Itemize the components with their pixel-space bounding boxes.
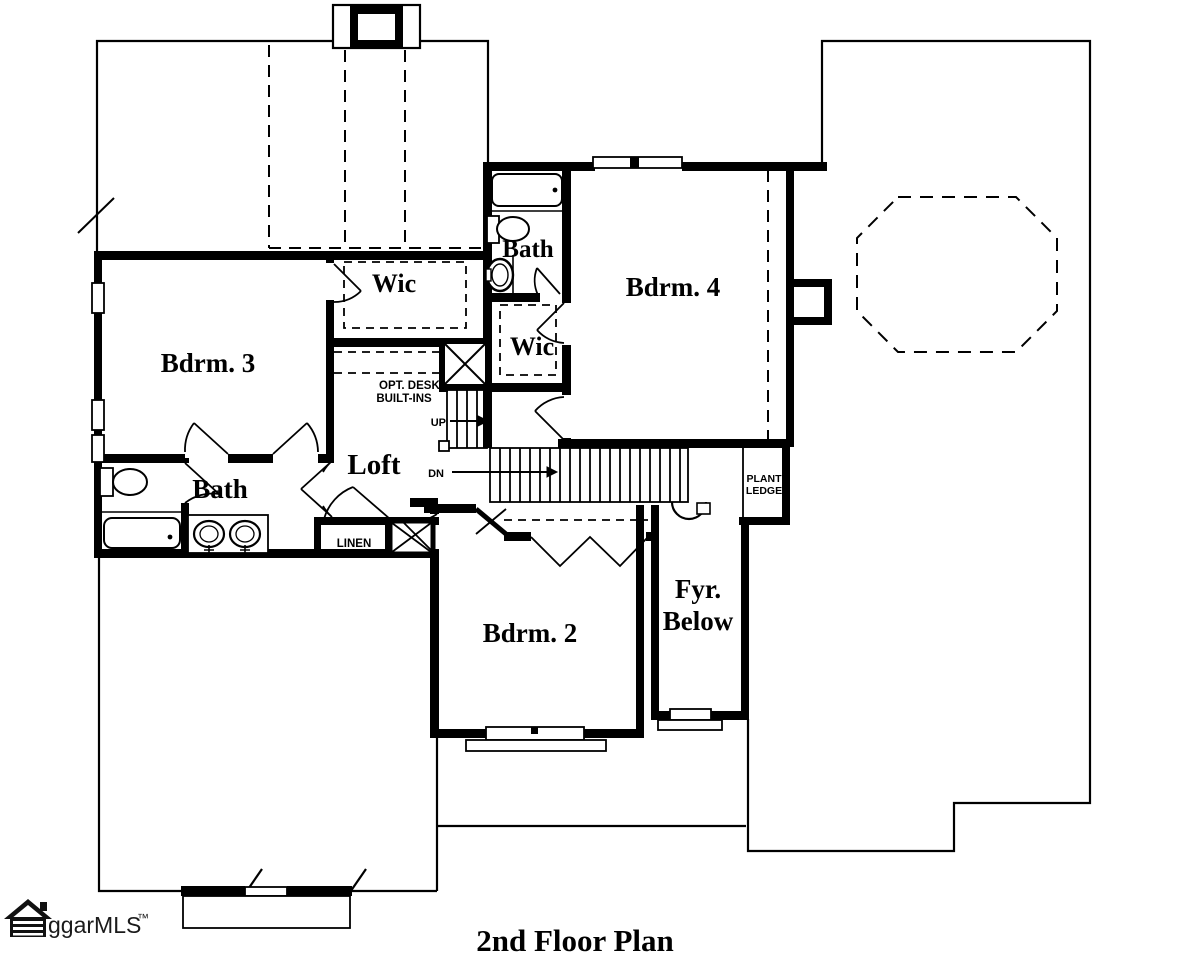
room-label-wic-right: Wic xyxy=(510,332,554,361)
room-label-wic-left: Wic xyxy=(372,269,416,298)
tub-lower xyxy=(104,518,180,548)
chimney xyxy=(333,5,420,48)
toilet-tank-lower xyxy=(100,468,113,496)
annotation-linen: LINEN xyxy=(337,538,372,550)
dashed-octagon-ceiling xyxy=(857,197,1057,352)
watermark: ggarMLS ™ xyxy=(4,899,149,938)
annotation-up: UP xyxy=(431,417,446,429)
dn-arrow-icon xyxy=(547,467,557,477)
floor-plan-page: Bdrm. 3 Bdrm. 4 Bdrm. 2 Loft Bath Bath W… xyxy=(0,0,1184,960)
annotation-plant-line1: PLANT xyxy=(747,473,783,485)
room-label-fyr-line2: Below xyxy=(663,606,734,636)
annotation-plant-line2: LEDGE xyxy=(746,485,782,497)
room-label-bath-lower: Bath xyxy=(192,474,248,504)
toilet-bowl-lower xyxy=(113,469,147,495)
room-label-bdrm3: Bdrm. 3 xyxy=(161,348,256,378)
understair-closet-marks xyxy=(476,509,506,534)
watermark-text: ggarMLS xyxy=(48,912,141,938)
room-label-bath-upper: Bath xyxy=(502,236,554,263)
room-label-bdrm4: Bdrm. 4 xyxy=(626,272,721,302)
house-icon xyxy=(4,899,52,937)
annotation-opt-desk-line1: OPT. DESK/ xyxy=(379,380,444,392)
annotation-dn: DN xyxy=(428,468,444,480)
stair-arrows xyxy=(450,416,557,477)
tub-upper xyxy=(492,174,562,206)
room-label-fyr-line1: Fyr. xyxy=(675,574,721,604)
floor-plan-canvas: Bdrm. 3 Bdrm. 4 Bdrm. 2 Loft Bath Bath W… xyxy=(0,0,1184,960)
watermark-tm: ™ xyxy=(137,911,149,925)
staircase xyxy=(439,390,710,519)
page-title: 2nd Floor Plan xyxy=(476,923,674,958)
room-label-loft: Loft xyxy=(347,449,401,481)
room-label-bdrm2: Bdrm. 2 xyxy=(483,618,578,648)
annotation-opt-desk-line2: BUILT-INS xyxy=(376,393,432,405)
